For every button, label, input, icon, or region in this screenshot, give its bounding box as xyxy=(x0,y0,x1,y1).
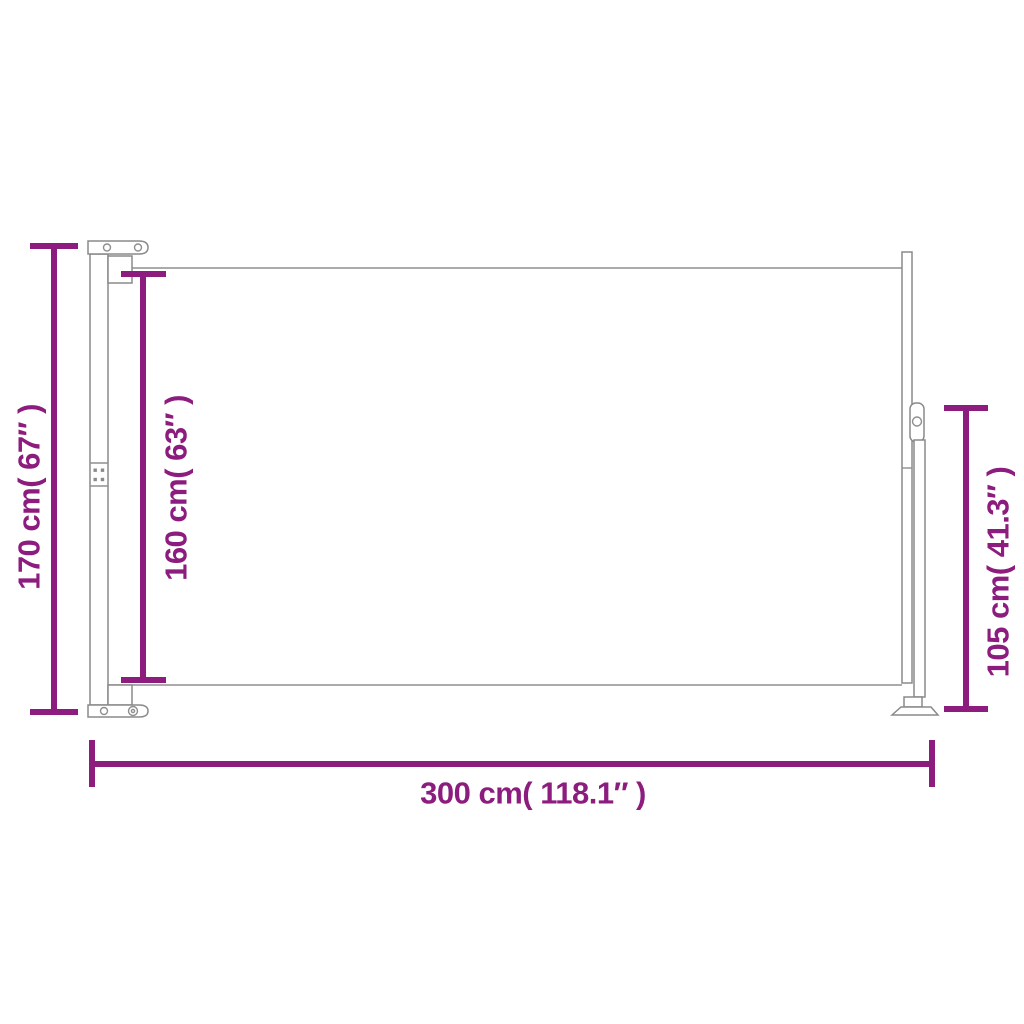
dimension-annotations: 170 cm( 67″ ) 160 cm( 63″ ) 105 cm( 41.3… xyxy=(12,243,1016,811)
left-roller-housing xyxy=(108,256,132,283)
screw-dot xyxy=(101,478,104,481)
bottom-wall-bracket xyxy=(88,705,148,717)
dim-label-width-total: 300 cm( 118.1″ ) xyxy=(420,776,646,811)
screw-dot xyxy=(94,469,97,472)
awning-structure xyxy=(88,241,938,717)
dim-line xyxy=(140,271,146,683)
dimension-height-total: 170 cm( 67″ ) xyxy=(12,243,79,715)
screw-dot xyxy=(101,469,104,472)
dim-label-height-leg: 105 cm( 41.3″ ) xyxy=(981,467,1016,678)
screw-dot xyxy=(94,478,97,481)
dim-line xyxy=(51,243,57,715)
dimension-height-fabric: 160 cm( 63″ ) xyxy=(121,271,194,683)
foot-base-plate xyxy=(892,707,938,715)
awning-diagram-svg: 170 cm( 67″ ) 160 cm( 63″ ) 105 cm( 41.3… xyxy=(0,0,1024,1024)
dimension-height-leg: 105 cm( 41.3″ ) xyxy=(944,405,1016,712)
top-wall-bracket xyxy=(88,241,148,254)
left-post xyxy=(90,254,108,705)
dim-label-height-fabric: 160 cm( 63″ ) xyxy=(159,395,194,581)
left-bottom-housing xyxy=(108,685,132,705)
support-leg xyxy=(914,440,925,697)
product-dimension-image: 170 cm( 67″ ) 160 cm( 63″ ) 105 cm( 41.3… xyxy=(0,0,1024,1024)
leg-foot-step xyxy=(904,697,922,707)
dim-label-height-total: 170 cm( 67″ ) xyxy=(12,404,47,590)
dimension-width-total: 300 cm( 118.1″ ) xyxy=(89,740,935,811)
dim-line xyxy=(963,405,969,712)
dim-line xyxy=(89,761,935,767)
